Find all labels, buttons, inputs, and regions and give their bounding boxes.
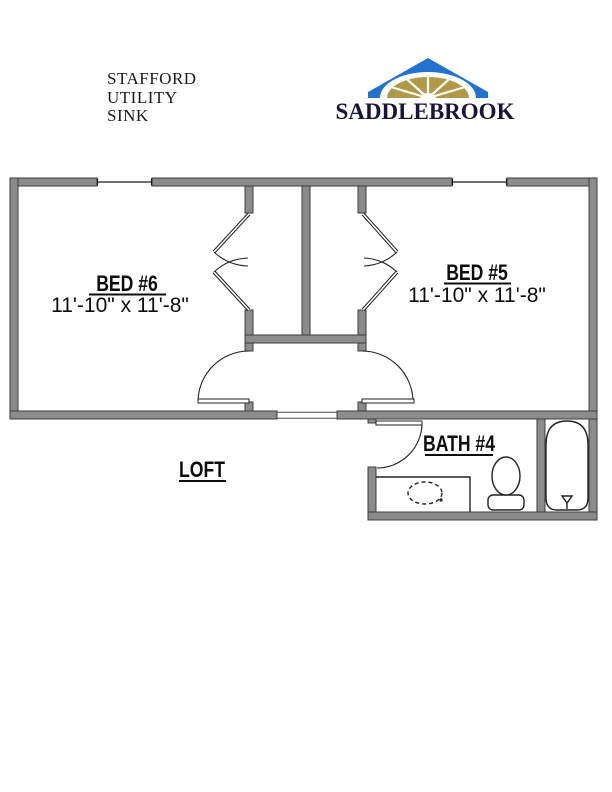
room-label-bed5: BED #5 11'-10" x 11'-8" (408, 261, 546, 307)
wall-segment (10, 178, 18, 419)
room-name: BED #6 (96, 272, 158, 296)
brand-name: SADDLEBROOK (336, 99, 515, 124)
door-bath (376, 421, 422, 468)
window (97, 179, 152, 186)
plan-canvas: STAFFORD UTILITY SINK SADDLEBROOK (0, 0, 612, 792)
toilet (488, 457, 524, 510)
wall-segment (368, 419, 376, 423)
wall-segment (368, 512, 597, 520)
wall-segment (358, 186, 366, 213)
plan-title-line-2: UTILITY (107, 88, 178, 107)
wall-segment (245, 310, 253, 351)
saddlebrook-logo: SADDLEBROOK (336, 58, 515, 124)
plan-title-line-3: SINK (107, 106, 149, 125)
sink (408, 482, 443, 504)
wall-segment (337, 411, 597, 419)
wall-segment (245, 186, 253, 213)
wall-segment (10, 411, 277, 419)
plan-title: STAFFORD UTILITY SINK (107, 69, 197, 125)
plan-title-line-1: STAFFORD (107, 69, 197, 88)
wall-segment (302, 186, 310, 343)
wall-segment (10, 178, 97, 186)
room-name: LOFT (179, 458, 225, 482)
room-label-bed6: BED #6 11'-10" x 11'-8" (51, 272, 189, 317)
room-name: BED #5 (446, 261, 508, 285)
bifold-door-left-closet (214, 214, 249, 310)
door-bed6 (198, 351, 249, 403)
door-bed5 (362, 351, 414, 403)
room-dimensions: 11'-10" x 11'-8" (51, 294, 189, 317)
wall-segment (245, 335, 366, 343)
room-label-loft: LOFT (179, 458, 226, 482)
bifold-door-right-closet (363, 214, 397, 310)
wall-segment (358, 310, 366, 351)
room-name: BATH #4 (423, 432, 495, 456)
window (452, 179, 507, 186)
cased-opening (277, 412, 337, 418)
wall-segment (537, 419, 545, 512)
bathtub (546, 421, 588, 510)
wall-segment (152, 178, 452, 186)
room-dimensions: 11'-10" x 11'-8" (408, 284, 546, 307)
room-label-bath4: BATH #4 (423, 432, 495, 456)
wall-segment (507, 178, 597, 186)
wall-segment (589, 178, 597, 520)
floor-plan-page: STAFFORD UTILITY SINK SADDLEBROOK (0, 0, 612, 792)
